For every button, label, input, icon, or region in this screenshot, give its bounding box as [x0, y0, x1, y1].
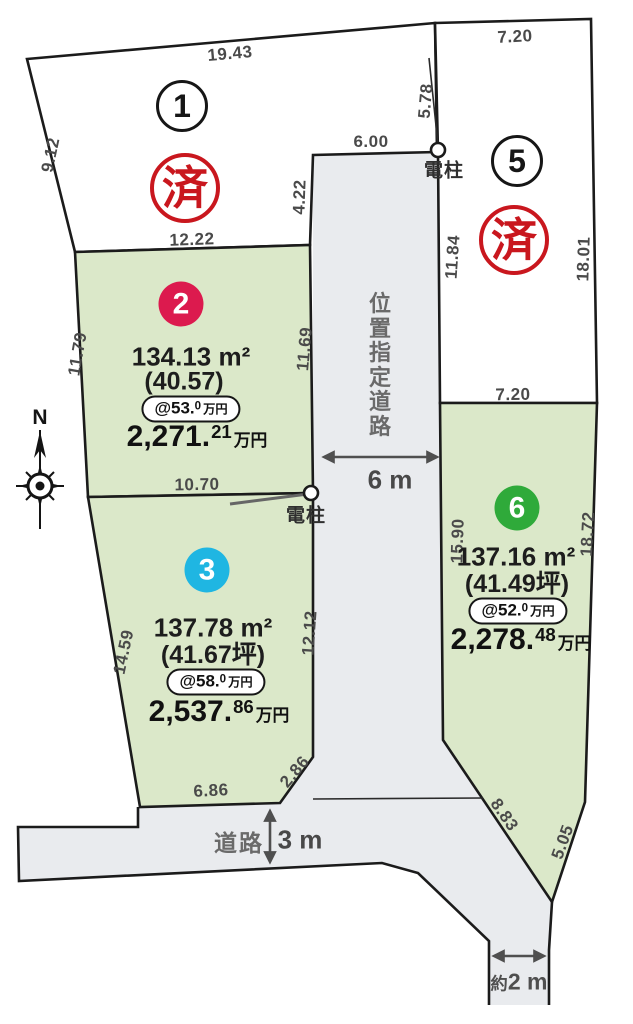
plot-3-price: 2,537.86万円 [149, 695, 290, 729]
dim-plot1-right: 4.22 [289, 179, 310, 215]
narrow-road-prefix: 約 [491, 974, 508, 994]
narrow-road-value: 2 m [508, 969, 548, 995]
dim-plot2-bottom: 10.70 [174, 475, 219, 496]
plot-6-tsubo: (41.49坪) [465, 564, 569, 600]
dim-plot1-top: 19.43 [207, 42, 254, 66]
plot-3-tsubo: (41.67坪) [161, 635, 265, 671]
dim-plot6-top: 7.20 [495, 385, 530, 406]
plot-1-number-badge: 1 [156, 80, 208, 132]
plot-6-price: 2,278.48万円 [451, 623, 592, 657]
dim-plot1-bottom: 12.22 [169, 229, 215, 251]
dim-pole-span: 5.78 [415, 83, 438, 120]
dim-plot5-right: 18.01 [573, 236, 595, 282]
dim-plot5-top: 7.20 [497, 26, 533, 48]
dim-road-top: 6.00 [353, 132, 388, 152]
compass-north-label: N [32, 406, 47, 430]
road-junction-line [313, 798, 483, 799]
dim-plot2-right: 11.69 [293, 326, 317, 372]
dim-plot3-right: 12.12 [298, 610, 321, 656]
pole-mid-marker [304, 486, 318, 500]
dim-plot3-bottom: 6.86 [193, 780, 229, 802]
designated-road-width-label: 6 m [368, 465, 413, 496]
plot-2-unit-price: @53.0万円 [141, 396, 240, 423]
plot-5-number-badge: 5 [491, 135, 543, 187]
dim-plot6-right: 18.72 [577, 511, 599, 557]
plot-2-tsubo: (40.57) [144, 368, 223, 397]
pole-mid-label: 電柱 [286, 501, 326, 528]
plot-2-number-badge: 2 [159, 282, 204, 327]
pole-top-label: 電柱 [424, 156, 464, 183]
land-plot-map: N 19.43 9.12 12.22 4.22 6.00 5.78 7.20 1… [0, 0, 633, 1024]
south-road-label: 道路 [214, 824, 264, 858]
designated-road-label: 位置指定道路 [368, 292, 392, 440]
plot-2-price: 2,271.21万円 [127, 420, 268, 454]
plot-6-unit-price: @52.0万円 [468, 598, 567, 625]
plot-6-number-badge: 6 [495, 486, 540, 531]
plot-3-number-badge: 3 [185, 548, 230, 593]
narrow-road-width-label: 約2 m [491, 969, 548, 996]
plot-3-unit-price: @58.0万円 [166, 669, 265, 696]
plot-1-sold-stamp: 済 [150, 153, 220, 223]
dim-plot5-left: 11.84 [441, 234, 464, 279]
compass-rose-icon [16, 430, 64, 529]
plot-5-sold-stamp: 済 [479, 205, 549, 275]
south-road-width-label: 3 m [278, 825, 323, 856]
